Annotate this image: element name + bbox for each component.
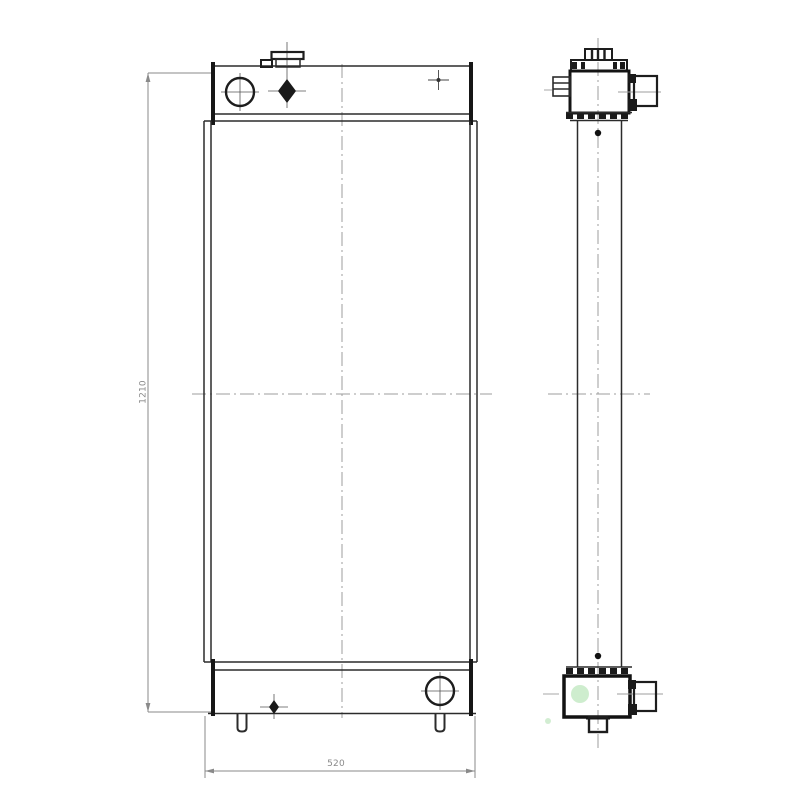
height-dimension-label: 1210 bbox=[139, 380, 149, 404]
radiator-drawing: 1210 520 bbox=[0, 0, 800, 800]
pipe-bolt bbox=[628, 680, 636, 689]
front-filler-cap bbox=[261, 42, 304, 108]
right-bracket-box bbox=[634, 76, 657, 106]
side-top-tank bbox=[566, 71, 632, 121]
plus-marker-dot bbox=[437, 78, 441, 82]
side-top-right-bracket bbox=[618, 74, 661, 111]
side-bottom-tank bbox=[543, 667, 663, 724]
bracket-bolt bbox=[628, 74, 636, 83]
side-top-left-bracket bbox=[544, 77, 570, 96]
left-mounting-pin bbox=[238, 714, 247, 732]
front-bottom-diamond-marker bbox=[260, 694, 288, 719]
green-highlight-circle bbox=[571, 685, 589, 703]
front-top-diamond-marker bbox=[268, 79, 306, 103]
side-view bbox=[543, 38, 663, 748]
flange-bolt bbox=[620, 62, 625, 69]
green-highlight-dot bbox=[545, 718, 551, 724]
front-mounting-pins bbox=[238, 714, 445, 732]
front-inlet-port bbox=[221, 73, 259, 111]
technical-drawing-canvas: 1210 520 bbox=[0, 0, 800, 800]
right-pipe-box bbox=[634, 682, 656, 711]
bottom-diamond-marker-icon bbox=[269, 700, 279, 714]
front-core bbox=[204, 121, 477, 662]
centerline-dot-top bbox=[595, 130, 601, 136]
front-bottom-tank bbox=[204, 659, 477, 716]
arrowhead-right-icon bbox=[466, 769, 475, 774]
arrowhead-down-icon bbox=[146, 703, 151, 712]
arrowhead-left-icon bbox=[205, 769, 214, 774]
left-bracket-box bbox=[553, 77, 570, 96]
front-outlet-port bbox=[421, 672, 459, 710]
arrowhead-up-icon bbox=[146, 73, 151, 82]
flange-bolt bbox=[581, 62, 585, 69]
side-filler-cap bbox=[571, 49, 627, 71]
right-mounting-pin bbox=[436, 714, 445, 732]
bracket-bolt bbox=[628, 99, 637, 111]
flange-bolt bbox=[572, 62, 577, 69]
filler-cap-flange bbox=[272, 52, 304, 59]
side-cap-flange bbox=[571, 60, 627, 71]
width-dimension-label: 520 bbox=[327, 759, 345, 769]
front-plus-marker bbox=[428, 70, 449, 90]
front-view bbox=[192, 42, 492, 732]
side-bottom-right-pipe bbox=[628, 680, 656, 715]
front-top-tank bbox=[204, 62, 477, 125]
dimension-height: 1210 bbox=[139, 73, 212, 712]
centerline-dot-bottom bbox=[595, 653, 601, 659]
pipe-bolt bbox=[628, 704, 637, 715]
diamond-marker-icon bbox=[278, 79, 296, 103]
flange-bolt bbox=[613, 62, 617, 69]
